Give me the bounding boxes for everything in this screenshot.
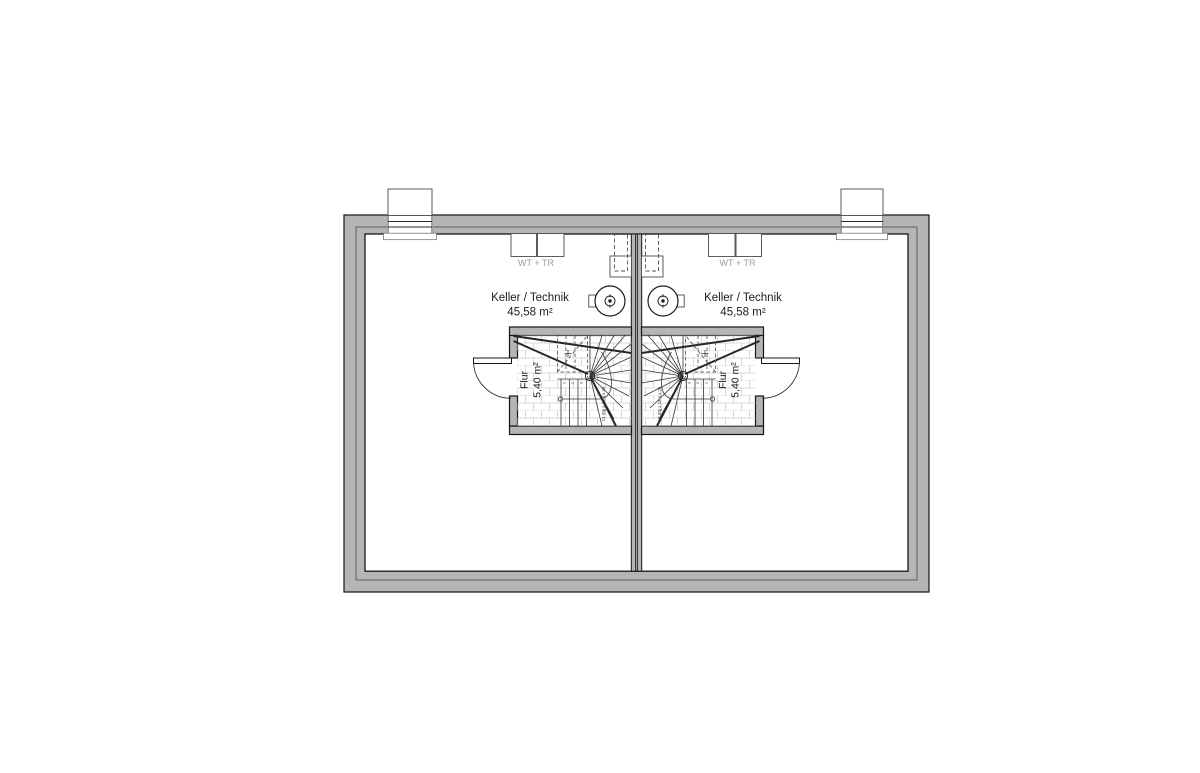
interior-floor	[365, 234, 908, 571]
window-sill	[384, 233, 437, 240]
light-well	[841, 189, 883, 216]
enclosure-wall-top	[642, 327, 764, 336]
floor-plan-drawing: WT + TR Keller / Technik 45,58 m²	[0, 0, 1200, 773]
door-leaf	[474, 358, 512, 364]
appliances-label: WT + TR	[720, 258, 756, 268]
floor-plan-page: WT + TR Keller / Technik 45,58 m²	[0, 0, 1200, 773]
enclosure-wall-door-jamb-top	[756, 336, 764, 359]
building-shell	[344, 215, 929, 592]
stair-note: 13 Stg x 18,4 x 25	[657, 386, 662, 421]
hall-label: Flur	[717, 370, 729, 389]
duct-shaft	[610, 256, 632, 277]
window-left	[384, 189, 437, 240]
hall-area-label: 5,40 m²	[532, 362, 544, 398]
window-right	[837, 189, 888, 240]
room-area-label: 45,58 m²	[720, 307, 766, 319]
appliances-label: WT + TR	[518, 258, 554, 268]
washer-block	[511, 234, 537, 257]
window-sill	[837, 233, 888, 240]
stair-note: 13 Stg x 18,4 x 25	[601, 386, 606, 421]
door-leaf	[762, 358, 800, 364]
sump-center-dot	[661, 299, 664, 302]
enclosure-wall-bottom	[510, 426, 632, 435]
party-wall-left-leaf	[631, 234, 635, 571]
enclosure-wall-door-jamb-bottom	[510, 396, 518, 426]
enclosure-wall-door-jamb-top	[510, 336, 518, 359]
sump-center-dot	[608, 299, 611, 302]
hall-label: Flur	[519, 370, 531, 389]
enclosure-wall-top	[510, 327, 632, 336]
window-opening	[387, 216, 433, 233]
dryer-block	[736, 234, 762, 257]
room-label: Keller / Technik	[704, 292, 782, 304]
enclosure-wall-bottom	[642, 426, 764, 435]
enclosure-wall-door-jamb-bottom	[756, 396, 764, 426]
dryer-block	[538, 234, 565, 257]
party-wall-right-leaf	[637, 234, 641, 571]
room-area-label: 45,58 m²	[507, 307, 553, 319]
washer-block	[709, 234, 736, 257]
hall-area-label: 5,40 m²	[730, 362, 742, 398]
duct-shaft	[642, 256, 664, 277]
window-opening	[840, 216, 884, 233]
room-label: Keller / Technik	[491, 292, 569, 304]
light-well	[388, 189, 432, 216]
